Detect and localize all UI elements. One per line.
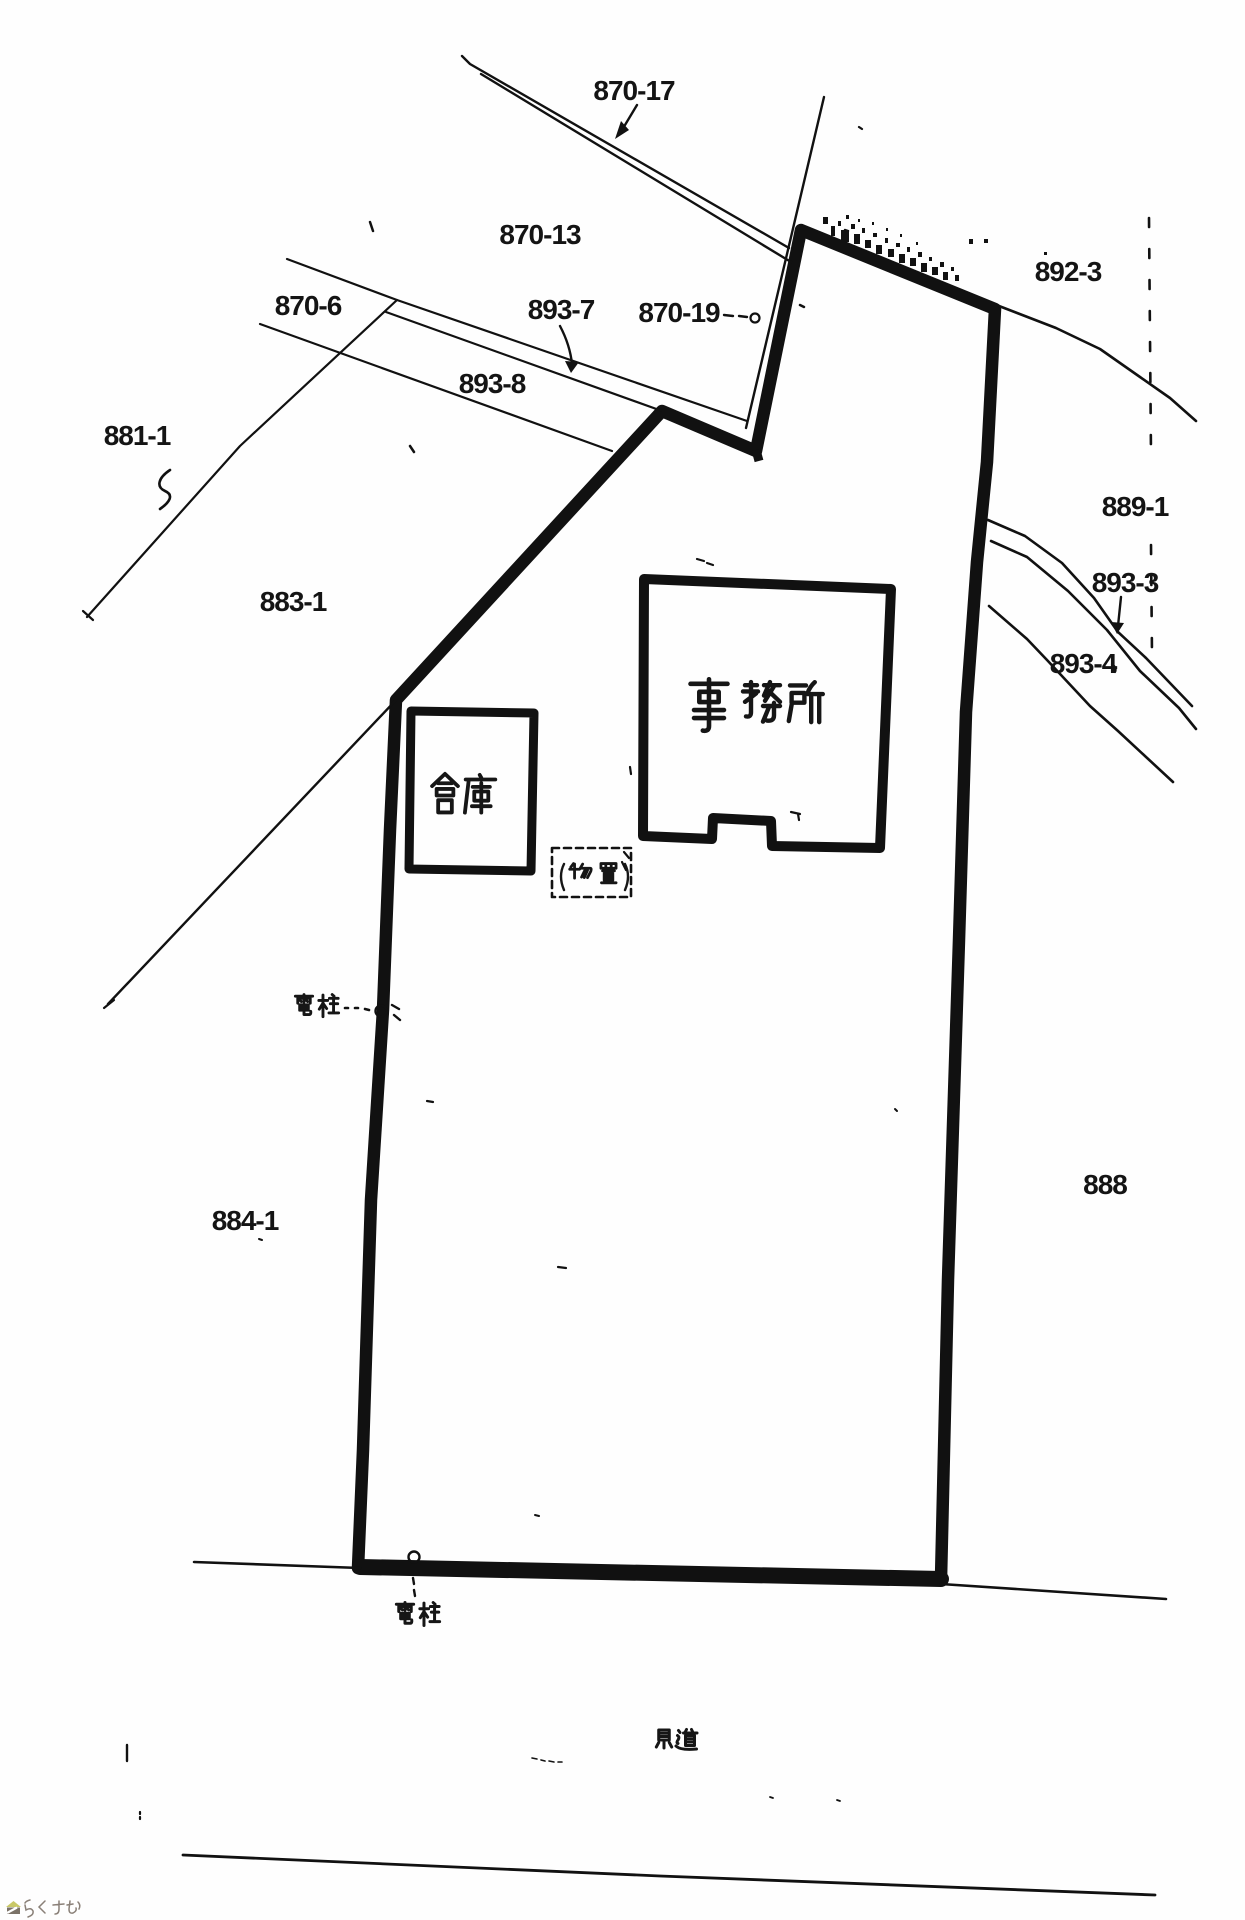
svg-text:870-17: 870-17 <box>593 75 675 106</box>
svg-text:888: 888 <box>1083 1169 1127 1200</box>
svg-text:893-7: 893-7 <box>528 294 595 325</box>
svg-text:893-4: 893-4 <box>1050 648 1118 679</box>
svg-text:892-3: 892-3 <box>1035 256 1102 287</box>
svg-text:870-6: 870-6 <box>275 290 342 321</box>
svg-text:893-8: 893-8 <box>459 368 526 399</box>
svg-text:870-19: 870-19 <box>638 297 720 328</box>
svg-text:883-1: 883-1 <box>260 586 327 617</box>
svg-text:870-13: 870-13 <box>499 219 581 250</box>
svg-text:881-1: 881-1 <box>104 420 171 451</box>
svg-text:889-1: 889-1 <box>1102 491 1169 522</box>
svg-text:884-1: 884-1 <box>212 1205 279 1236</box>
svg-text:893-3: 893-3 <box>1092 567 1159 598</box>
